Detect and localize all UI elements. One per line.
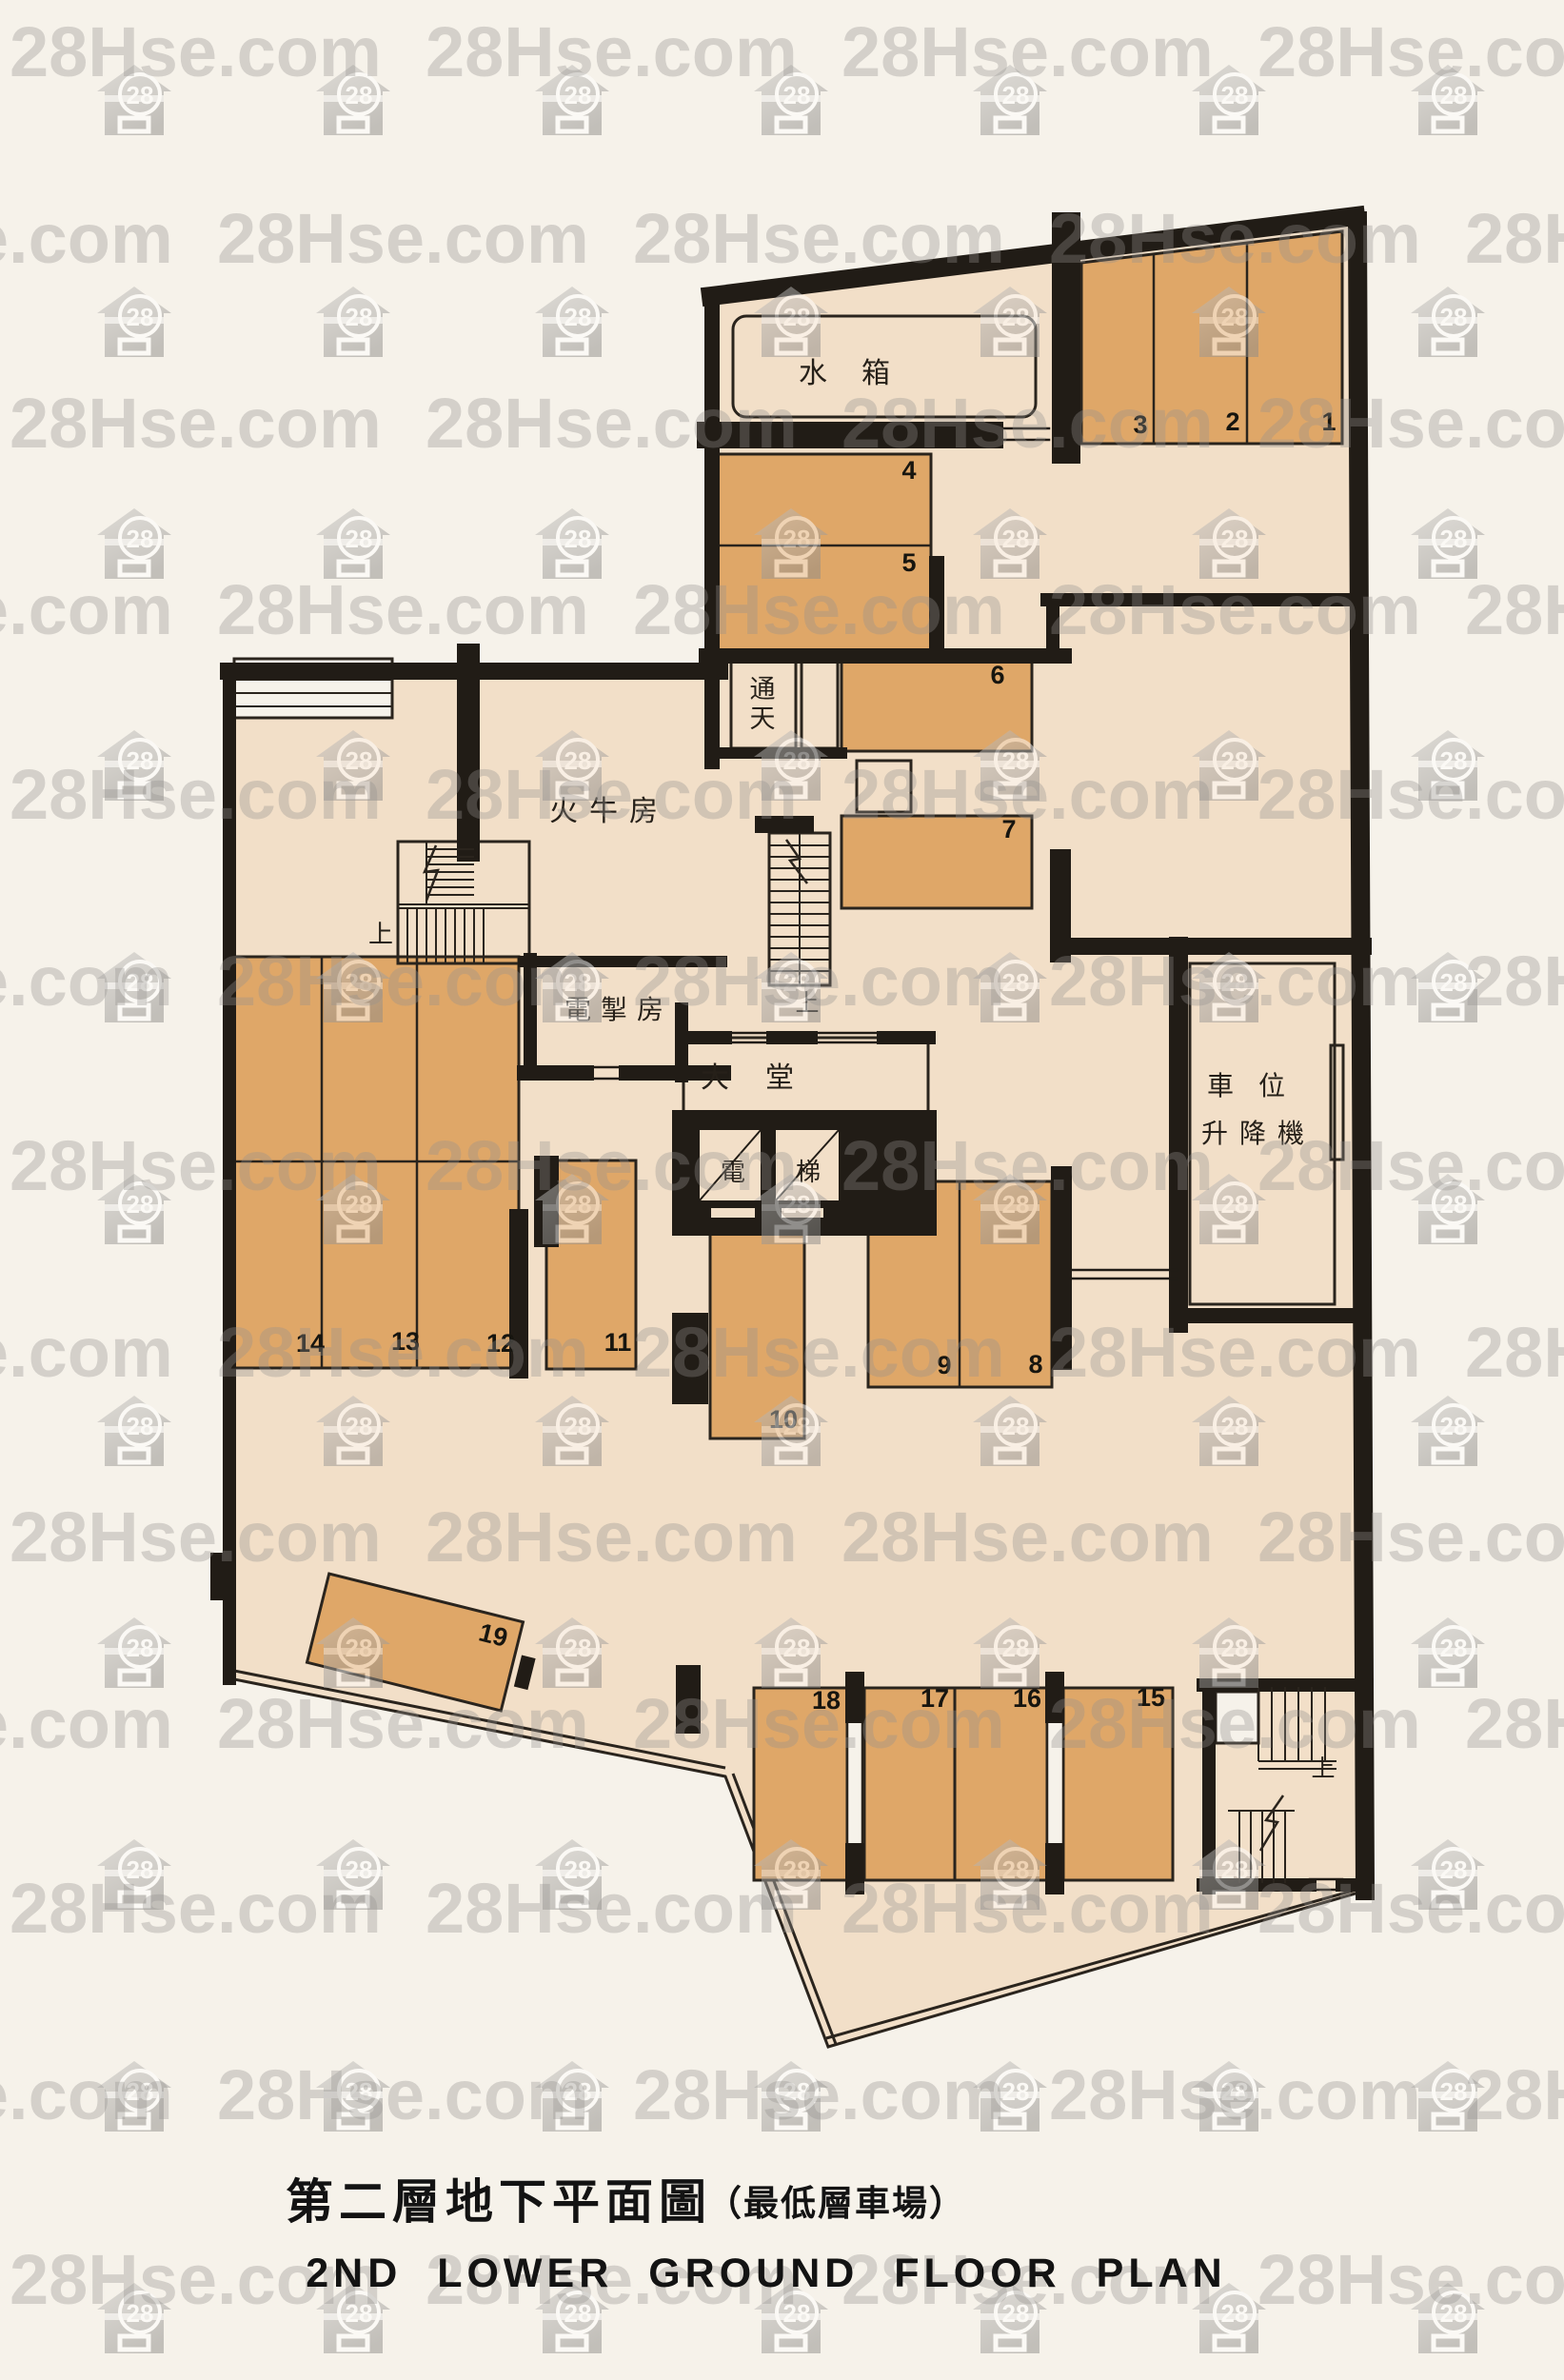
- scanned-floor-plan-page: 28 28Hse.com 28Hse.com 28Hse.com: [0, 0, 1564, 2380]
- floor-plan-drawing: 28 28Hse.com 28Hse.com 28Hse.com: [0, 0, 1564, 2380]
- title-chinese-main: 第二層地下平面圖: [286, 2175, 712, 2229]
- watermark-text-layer: [0, 0, 1564, 2380]
- title-chinese-sub: （最低層車場）: [706, 2184, 966, 2223]
- title-english: 2ND LOWER GROUND FLOOR PLAN: [306, 2251, 1226, 2296]
